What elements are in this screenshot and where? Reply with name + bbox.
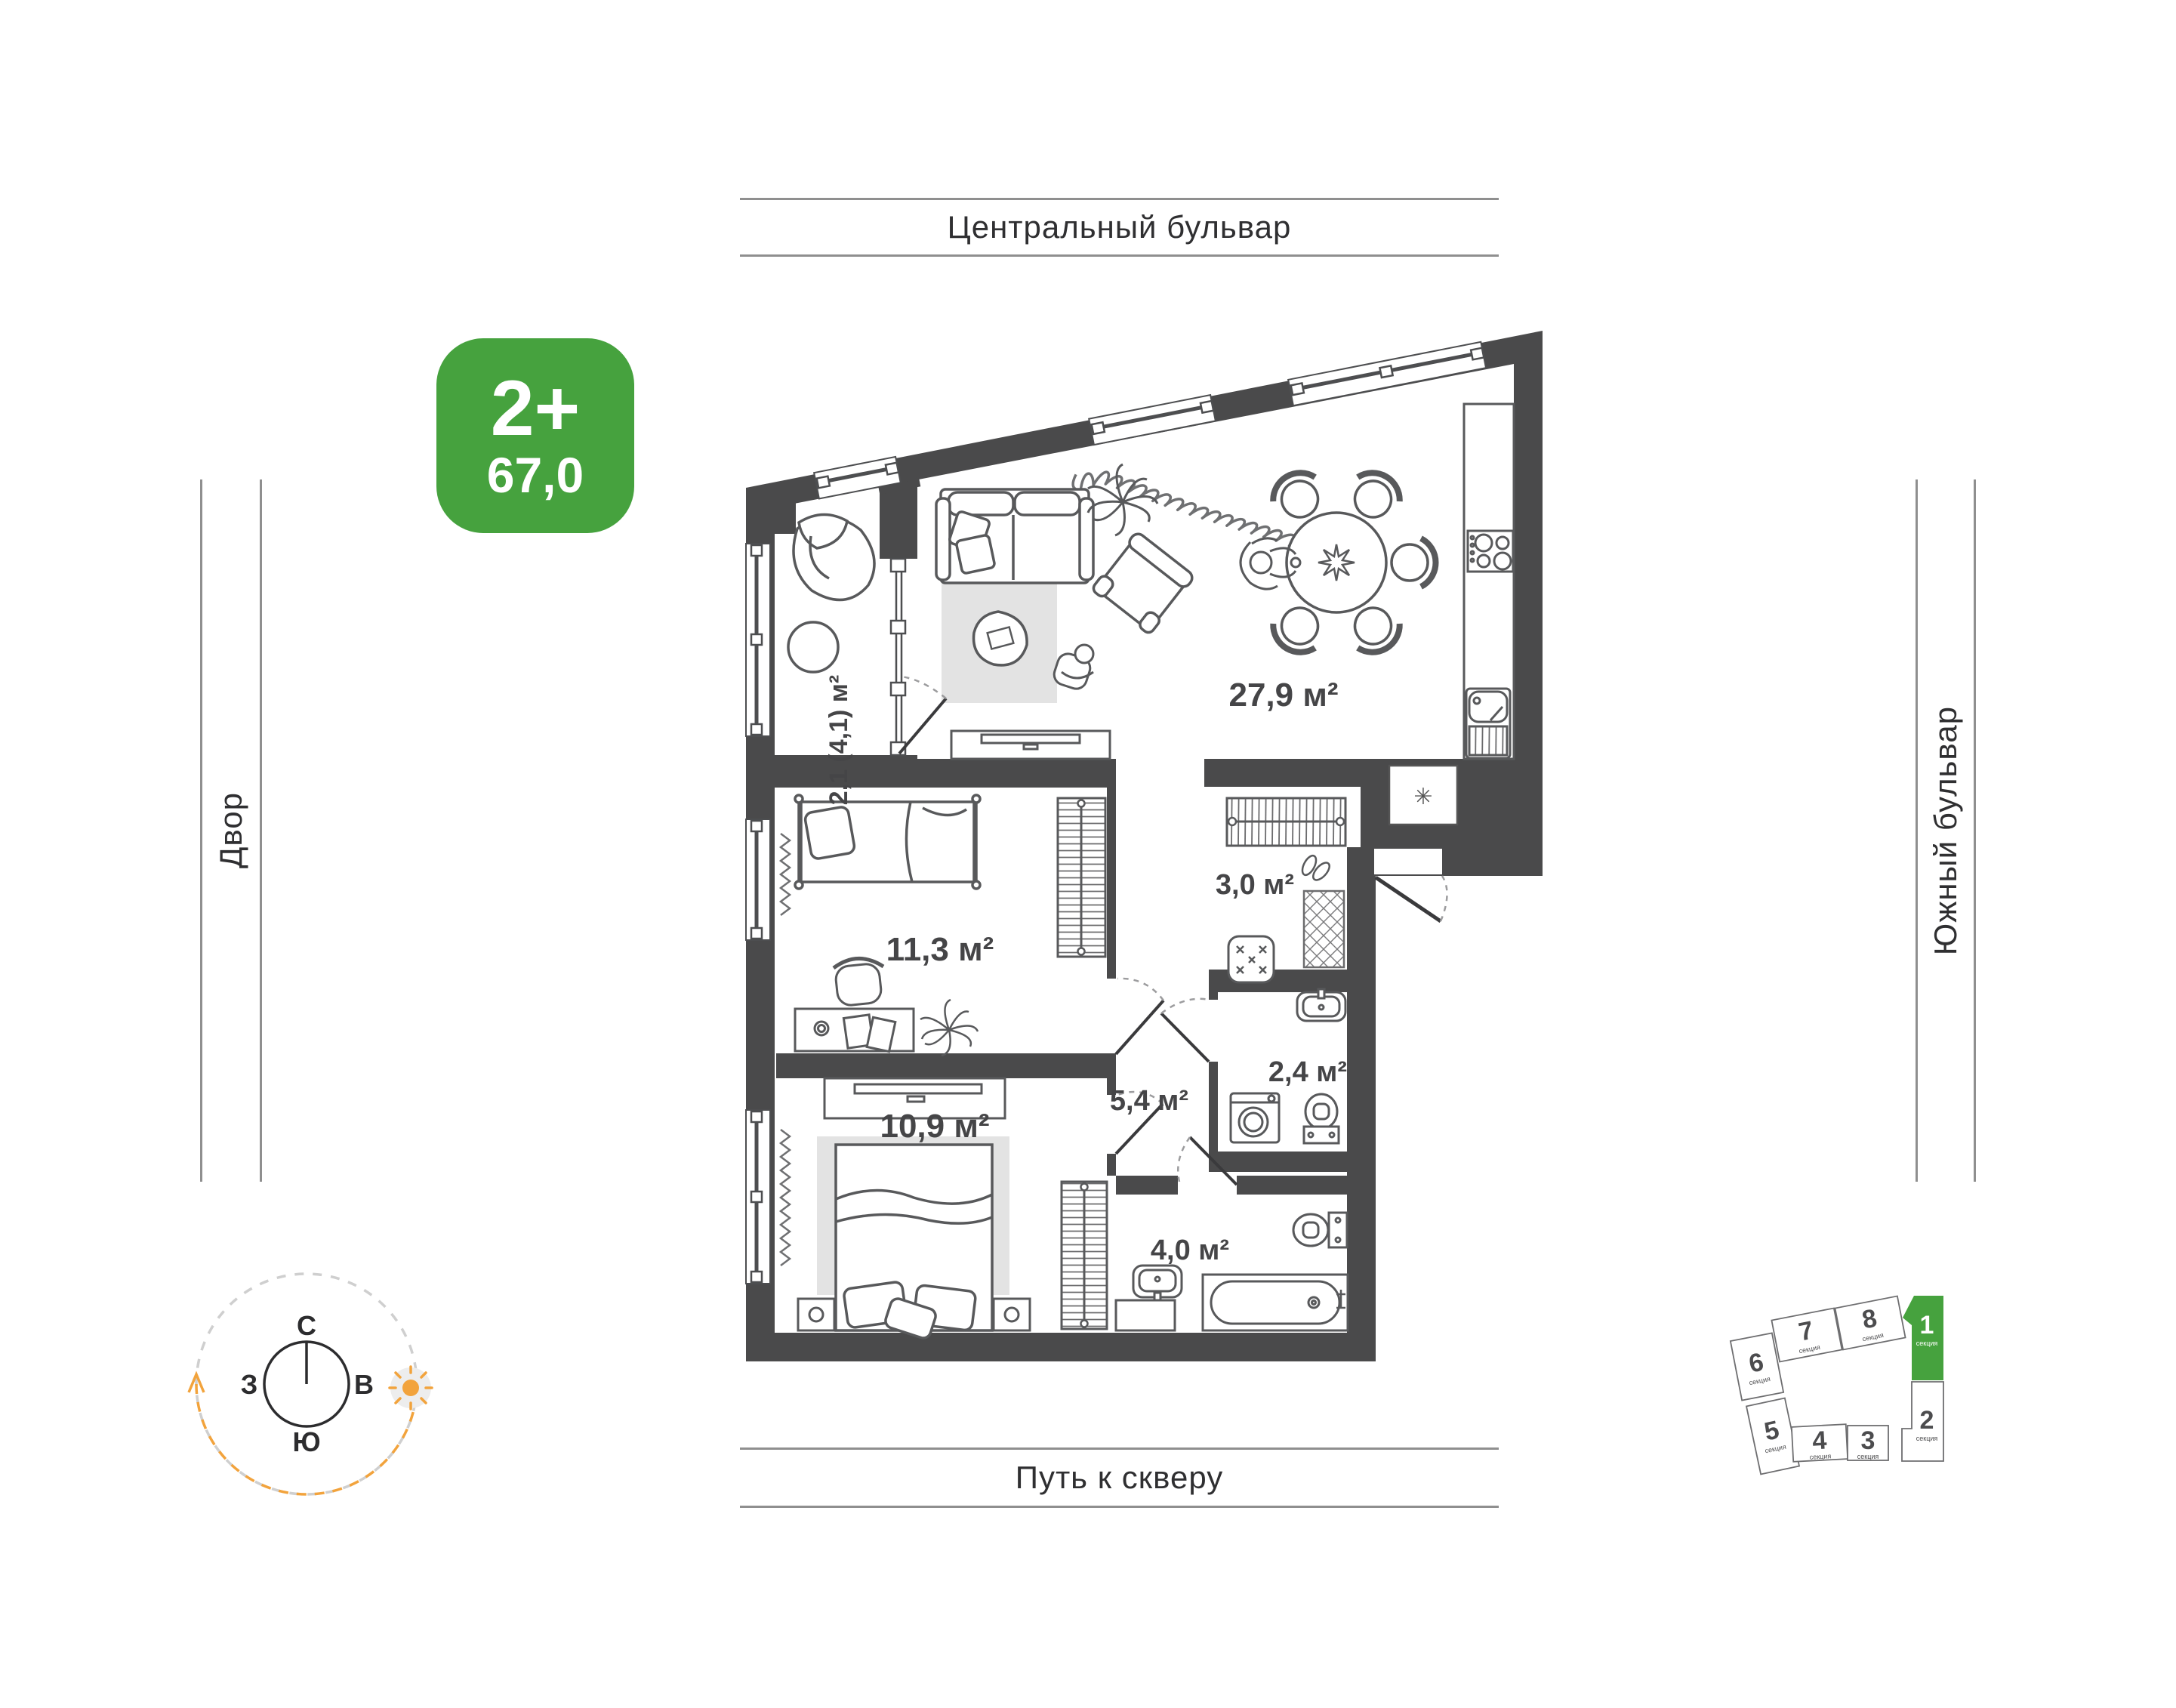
- slippers: [1299, 853, 1332, 883]
- badge-rooms: 2+: [491, 372, 581, 446]
- section-3[interactable]: 3 секция: [1848, 1426, 1888, 1460]
- single-bed: [795, 795, 980, 889]
- person-on-pouf: [1052, 645, 1093, 692]
- street-left: Двор: [200, 479, 262, 1182]
- coffee-table: [974, 612, 1028, 665]
- street-bottom: Путь к скверу: [740, 1447, 1499, 1508]
- toilet-small: [1304, 1094, 1339, 1143]
- compass-east: В: [354, 1369, 374, 1400]
- bath-counter: [1116, 1300, 1175, 1330]
- coat-rack: [1227, 798, 1345, 846]
- sofa: [936, 489, 1093, 583]
- armchair: [1091, 531, 1195, 635]
- entrance-door-leaf: [1376, 877, 1441, 921]
- section-4[interactable]: 4 секция: [1792, 1424, 1848, 1462]
- street-right: Южный бульвар: [1916, 479, 1976, 1182]
- section-2[interactable]: 2 секция: [1902, 1382, 1943, 1461]
- svg-text:3: 3: [1861, 1426, 1875, 1455]
- compass-west: З: [241, 1369, 258, 1400]
- room-label-bath-small: 2,4 м²: [1268, 1056, 1347, 1088]
- utility-niche: ✳: [1389, 766, 1457, 825]
- svg-text:секция: секция: [1809, 1452, 1831, 1460]
- compass-north: С: [297, 1310, 316, 1341]
- plant-bedroom1: [920, 1000, 978, 1056]
- floorplan-svg: ✳: [732, 317, 1548, 1374]
- wardrobe-bedroom1: [1058, 798, 1105, 957]
- balcony-glazing: [891, 559, 946, 755]
- plant-living: [1088, 464, 1157, 535]
- washing-machine: [1231, 1093, 1279, 1142]
- svg-text:секция: секция: [1916, 1435, 1938, 1442]
- sink-large: [1133, 1266, 1182, 1300]
- entry-rug: [1304, 891, 1344, 967]
- desk-chair: [834, 958, 883, 1006]
- section-1-active[interactable]: 1 секция: [1903, 1296, 1943, 1380]
- room-label-entry: 3,0 м²: [1216, 869, 1294, 901]
- street-right-label: Южный бульвар: [1928, 706, 1964, 955]
- entrance-door: [1374, 849, 1447, 921]
- street-left-label: Двор: [213, 792, 249, 868]
- compass-south: Ю: [292, 1426, 320, 1457]
- tv-stand-living: [951, 731, 1110, 759]
- bathtub: [1203, 1275, 1348, 1330]
- floorplan-page: Центральный бульвар Путь к скверу Двор Ю…: [0, 0, 2176, 1708]
- dining-set: [1241, 464, 1436, 661]
- entrance-door-arc: [1441, 876, 1447, 921]
- compass: С В З Ю: [174, 1253, 445, 1510]
- room-label-corridor: 5,4 м²: [1110, 1085, 1188, 1117]
- sun-icon: [390, 1367, 432, 1409]
- street-top: Центральный бульвар: [740, 198, 1499, 257]
- kitchen-sink: [1466, 689, 1510, 758]
- sink-small: [1297, 989, 1345, 1021]
- svg-text:1: 1: [1920, 1311, 1934, 1340]
- svg-text:секция: секция: [1857, 1453, 1879, 1460]
- building-section-map: 6 секция 7 секция 8 секция 2 секция 5: [1684, 1238, 2001, 1525]
- apartment-type-badge: 2+ 67,0: [436, 338, 634, 533]
- left-wall-windows: [746, 544, 770, 1284]
- room-label-bedroom1: 11,3 м²: [886, 931, 994, 968]
- svg-text:4: 4: [1811, 1426, 1827, 1456]
- room-label-kitchen-living: 27,9 м²: [1228, 677, 1338, 714]
- dining-table: [1287, 513, 1386, 612]
- wardrobe-bedroom2: [1062, 1182, 1107, 1329]
- bath-large: [1116, 1213, 1348, 1330]
- desk: [795, 1009, 914, 1052]
- radiators: [781, 834, 790, 1266]
- room-label-bath-large: 4,0 м²: [1151, 1235, 1229, 1266]
- utility-symbol: ✳: [1413, 785, 1432, 809]
- balcony-door-leaf: [899, 698, 946, 754]
- room-label-balcony: 2,1 (4,1) м²: [824, 675, 853, 806]
- stove: [1468, 531, 1513, 572]
- balcony-table: [788, 622, 838, 672]
- street-top-label: Центральный бульвар: [948, 209, 1292, 245]
- svg-text:секция: секция: [1916, 1340, 1938, 1347]
- section-7[interactable]: 7 секция: [1771, 1309, 1842, 1362]
- balcony-lounge-chair: [794, 514, 874, 600]
- room-label-bedroom2: 10,9 м²: [880, 1108, 989, 1145]
- toilet-large: [1293, 1213, 1347, 1247]
- street-bottom-label: Путь к скверу: [1016, 1460, 1223, 1496]
- entry-pouf: [1228, 936, 1274, 982]
- svg-text:2: 2: [1920, 1406, 1934, 1435]
- badge-area: 67,0: [487, 450, 584, 500]
- double-bed: [836, 1145, 992, 1340]
- section-8[interactable]: 8 секция: [1835, 1296, 1905, 1350]
- balcony-door-arc: [902, 677, 946, 698]
- section-5[interactable]: 5 секция: [1746, 1398, 1799, 1475]
- kitchen-counter: [1464, 404, 1514, 759]
